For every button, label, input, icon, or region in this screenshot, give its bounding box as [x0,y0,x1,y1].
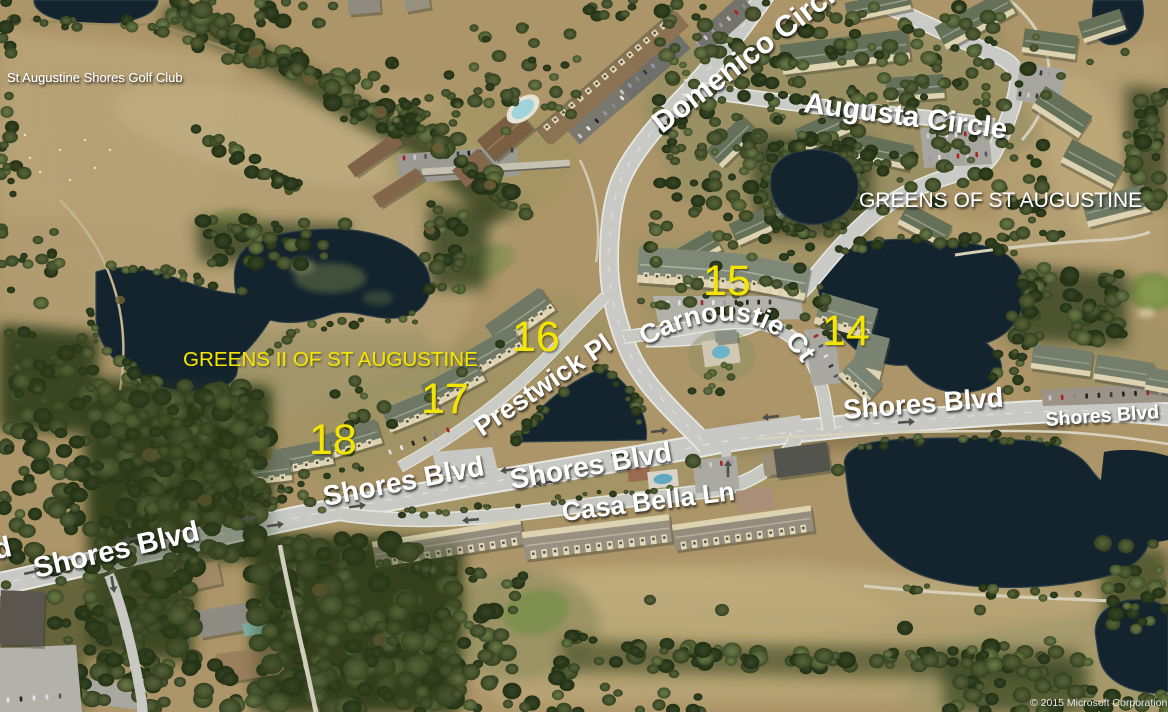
svg-text:St Augustine Shores Golf Club: St Augustine Shores Golf Club [7,70,183,85]
svg-text:15: 15 [703,257,751,305]
svg-text:14: 14 [822,307,870,355]
svg-text:© 2015 Microsoft Corporation: © 2015 Microsoft Corporation [1030,697,1167,709]
svg-text:17: 17 [421,375,469,423]
svg-text:GREENS II OF ST AUGUSTINE: GREENS II OF ST AUGUSTINE [183,348,478,371]
svg-text:GREENS OF ST AUGUSTINE: GREENS OF ST AUGUSTINE [859,189,1142,212]
svg-text:16: 16 [512,313,560,361]
svg-text:18: 18 [309,416,357,464]
